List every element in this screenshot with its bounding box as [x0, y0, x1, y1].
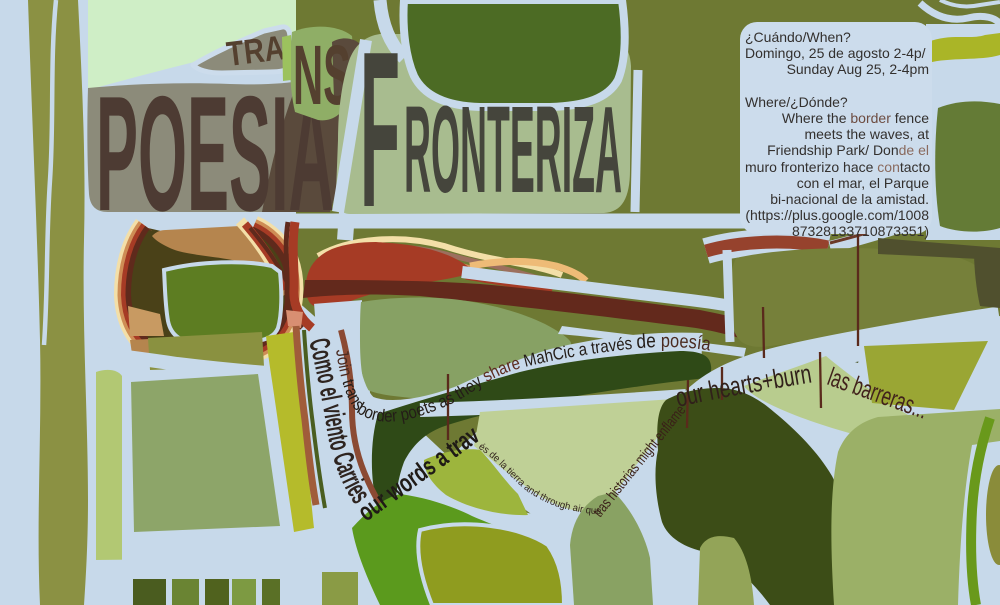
svg-text:TRA: TRA — [224, 28, 286, 73]
svg-text:RONTERIZA: RONTERIZA — [404, 80, 622, 218]
svg-text:F: F — [360, 6, 400, 254]
